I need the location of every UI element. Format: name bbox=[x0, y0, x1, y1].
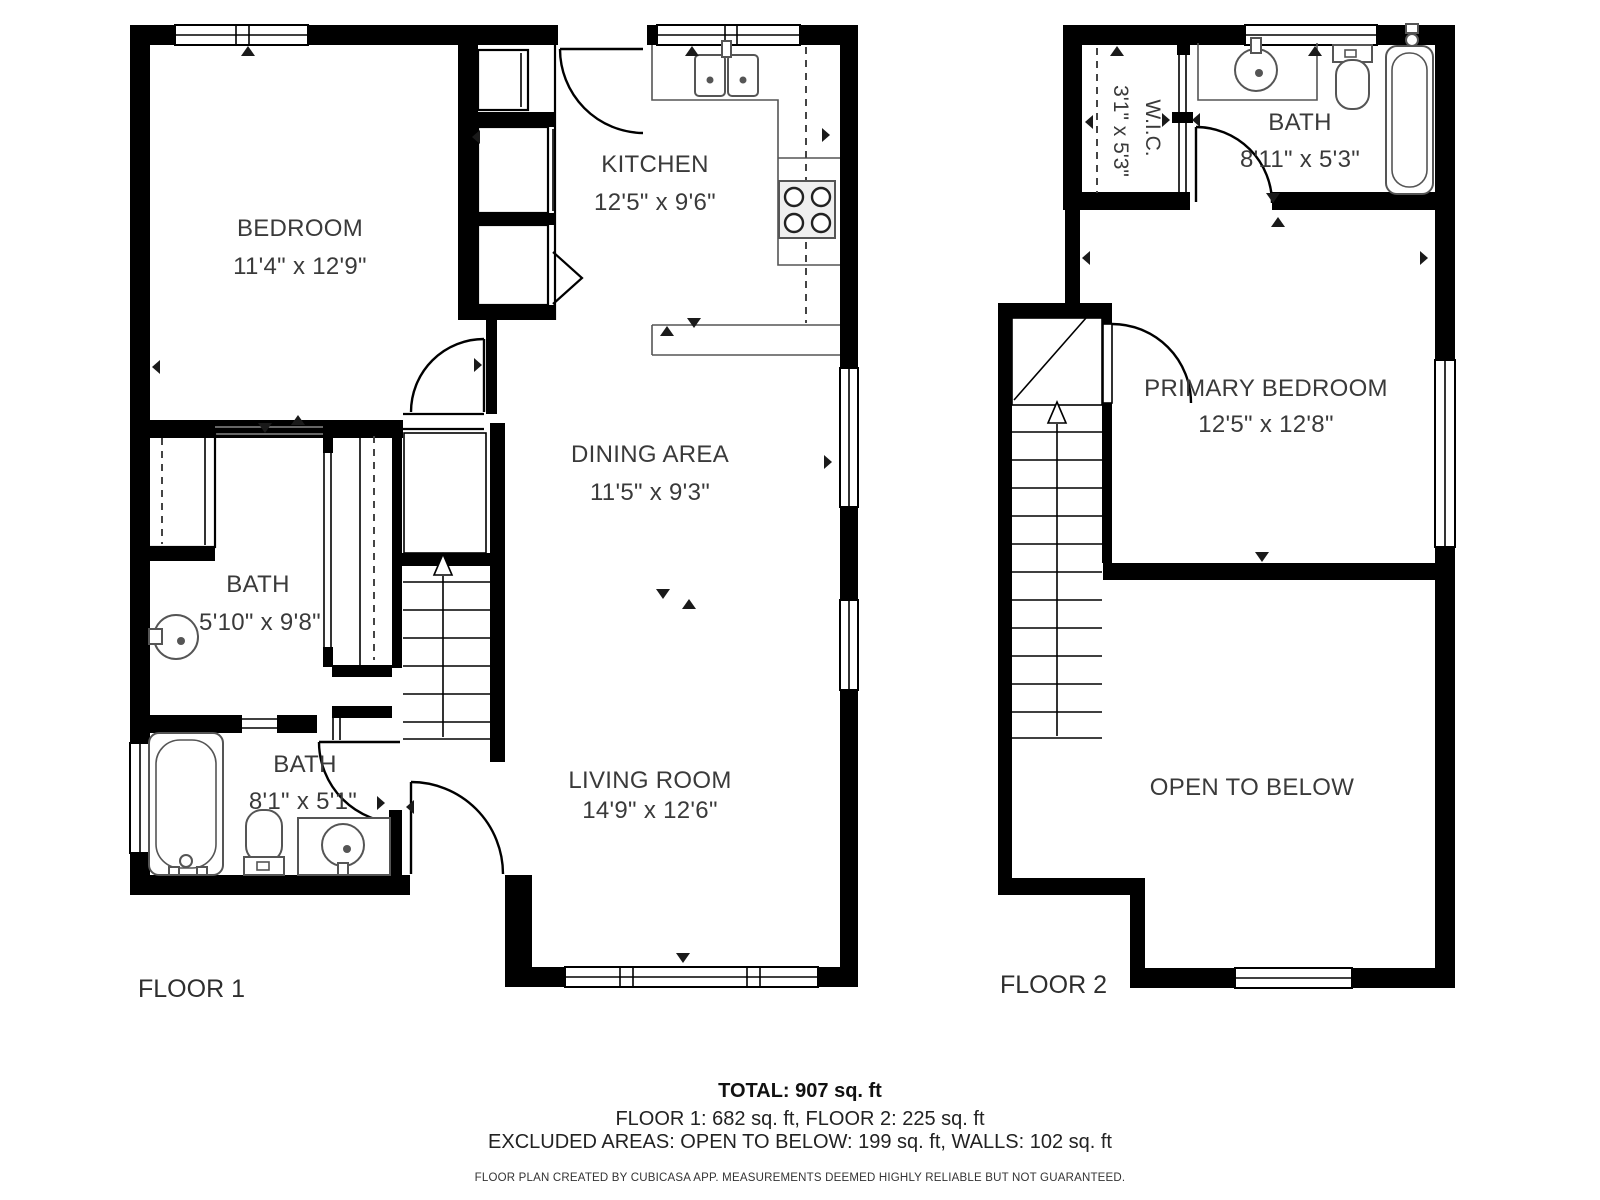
room-label-kitchen: KITCHEN bbox=[601, 151, 708, 178]
window bbox=[130, 743, 150, 853]
entry-opening bbox=[410, 875, 505, 895]
floorplan-canvas: BEDROOM 11'4" x 12'9" KITCHEN 12'5" x 9'… bbox=[0, 0, 1600, 1200]
room-dims-dining: 11'5" x 9'3" bbox=[590, 479, 710, 506]
room-dims-bath-lower: 8'1" x 5'1" bbox=[249, 788, 357, 815]
toilet bbox=[1333, 45, 1372, 109]
disclaimer: FLOOR PLAN CREATED BY CUBICASA APP. MEAS… bbox=[475, 1172, 1126, 1184]
toilet bbox=[244, 810, 284, 875]
floor1-plan: BEDROOM 11'4" x 12'9" KITCHEN 12'5" x 9'… bbox=[130, 25, 858, 1003]
room-label-primary-bedroom: PRIMARY BEDROOM bbox=[1144, 375, 1388, 402]
transition-arrow bbox=[676, 953, 690, 963]
staircase-floor2 bbox=[1012, 318, 1102, 738]
floor1-walls bbox=[130, 25, 858, 987]
total-area: TOTAL: 907 sq. ft bbox=[718, 1080, 882, 1102]
entry-door bbox=[411, 782, 503, 874]
window bbox=[1235, 968, 1352, 988]
transition-arrow bbox=[1271, 217, 1285, 227]
wall-tick bbox=[822, 128, 830, 142]
wall-tick bbox=[1420, 251, 1428, 265]
room-dims-kitchen: 12'5" x 9'6" bbox=[594, 189, 716, 216]
room-label-bath2: BATH bbox=[1268, 109, 1331, 136]
window bbox=[840, 368, 858, 507]
room-dims-bath2: 8'11" x 5'3" bbox=[1240, 146, 1360, 173]
wall-tick bbox=[474, 358, 482, 372]
bedroom-door bbox=[411, 339, 484, 412]
room-dims-wic: 3'1" x 5'3" bbox=[1109, 85, 1132, 177]
room-label-wic: W.I.C. bbox=[1141, 99, 1164, 156]
stove bbox=[779, 181, 835, 238]
wall-tick bbox=[152, 360, 160, 374]
bath-upper-fixtures bbox=[149, 615, 198, 659]
transition-arrow bbox=[685, 46, 699, 56]
floor-areas: FLOOR 1: 682 sq. ft, FLOOR 2: 225 sq. ft bbox=[615, 1108, 984, 1130]
floor2-label: FLOOR 2 bbox=[1000, 971, 1107, 999]
room-dims-bedroom: 11'4" x 12'9" bbox=[233, 253, 367, 280]
transition-arrow bbox=[1110, 46, 1124, 56]
window bbox=[175, 25, 308, 45]
room-label-bath-lower: BATH bbox=[273, 751, 336, 778]
vanity-sink bbox=[298, 818, 390, 875]
window bbox=[1435, 360, 1455, 547]
transition-arrow bbox=[656, 589, 670, 599]
wall-tick bbox=[1192, 113, 1200, 127]
room-dims-living: 14'9" x 12'6" bbox=[582, 797, 718, 824]
room-label-living: LIVING ROOM bbox=[568, 767, 731, 794]
room-label-bedroom: BEDROOM bbox=[237, 215, 363, 242]
floorplan-page: BEDROOM 11'4" x 12'9" KITCHEN 12'5" x 9'… bbox=[0, 0, 1600, 1200]
room-dims-bath-upper: 5'10" x 9'8" bbox=[199, 609, 321, 636]
kitchen-door bbox=[560, 49, 643, 133]
wall-tick bbox=[1082, 251, 1090, 265]
room-label-open-to-below: OPEN TO BELOW bbox=[1150, 774, 1354, 801]
staircase-floor1 bbox=[403, 554, 490, 739]
area-summary: TOTAL: 907 sq. ft FLOOR 1: 682 sq. ft, F… bbox=[475, 1080, 1126, 1184]
room-label-dining: DINING AREA bbox=[571, 441, 729, 468]
bathtub bbox=[149, 733, 223, 875]
bifold-door bbox=[553, 252, 582, 304]
transition-arrow bbox=[660, 326, 674, 336]
transition-arrow bbox=[1308, 46, 1322, 56]
floor2-arrows bbox=[1082, 46, 1428, 562]
excluded-areas: EXCLUDED AREAS: OPEN TO BELOW: 199 sq. f… bbox=[488, 1131, 1112, 1153]
transition-arrow bbox=[682, 599, 696, 609]
window bbox=[1245, 25, 1377, 45]
transition-arrow bbox=[241, 46, 255, 56]
window bbox=[840, 600, 858, 690]
shower-tub bbox=[1386, 24, 1433, 194]
transition-arrow bbox=[687, 318, 701, 328]
floor2-plan: 3'1" x 5'3" W.I.C. BATH 8'11" x 5'3" PRI… bbox=[998, 24, 1455, 999]
pedestal-sink bbox=[149, 615, 198, 659]
kitchen-sink bbox=[695, 41, 758, 96]
wall-tick bbox=[824, 455, 832, 469]
door-opening bbox=[558, 25, 647, 45]
wall-tick bbox=[377, 796, 385, 810]
room-label-bath-upper: BATH bbox=[226, 571, 289, 598]
transition-arrow bbox=[1255, 552, 1269, 562]
wall-tick bbox=[1085, 115, 1093, 129]
room-dims-primary-bedroom: 12'5" x 12'8" bbox=[1198, 411, 1334, 438]
floor1-label: FLOOR 1 bbox=[138, 975, 245, 1003]
window bbox=[565, 967, 818, 987]
